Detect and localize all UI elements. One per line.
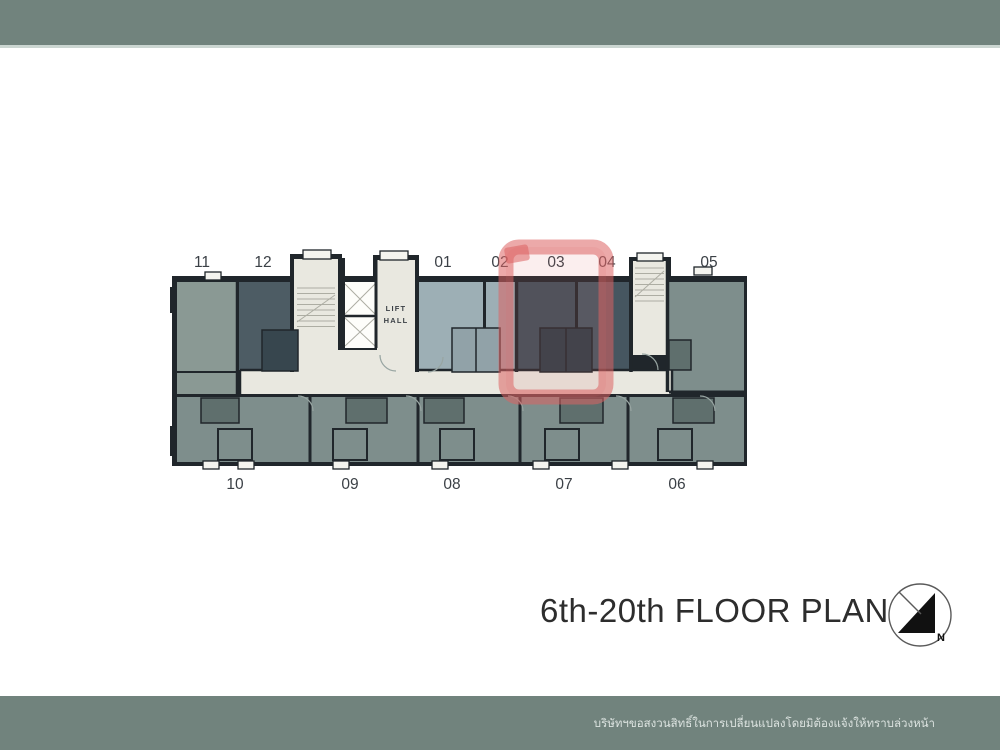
label-unit-11: 11	[194, 254, 210, 271]
lobby-pocket	[294, 350, 417, 372]
compass-tail-line	[899, 592, 921, 614]
compass-needle	[898, 593, 935, 633]
tick-bottom-3	[333, 461, 349, 469]
stairwell-2	[633, 261, 666, 355]
top-band-edge	[0, 45, 1000, 48]
label-unit-08: 08	[443, 476, 460, 493]
compass-north-label: N	[937, 632, 945, 644]
pod-unit-12	[262, 330, 298, 371]
pod-unit-05	[669, 340, 691, 370]
vent-lift-hall	[380, 251, 408, 260]
pod-unit-08	[424, 398, 464, 423]
label-unit-01: 01	[434, 254, 451, 271]
highlight-outline-unit-03	[506, 247, 606, 397]
unit-highlight	[504, 244, 606, 397]
slide: บริษัทฯขอสงวนสิทธิ์ในการเปลี่ยนแปลงโดยมิ…	[0, 0, 1000, 750]
label-unit-12: 12	[254, 254, 271, 271]
tick-bottom-4	[432, 461, 448, 469]
unit-labels-bottom: 10 09 08 07 06	[226, 476, 685, 493]
top-band	[0, 0, 1000, 45]
page-title: 6th-20th FLOOR PLAN	[540, 592, 889, 629]
vent-stair-2	[637, 253, 663, 261]
stairwell-1	[294, 259, 338, 355]
vent-unit-11	[205, 272, 221, 280]
tick-bottom-2	[238, 461, 254, 469]
vent-stair-1	[303, 250, 331, 259]
tick-bottom-7	[697, 461, 713, 469]
label-unit-10: 10	[226, 476, 244, 493]
lift-hall-text-2: HALL	[384, 316, 409, 325]
north-compass-icon: N	[889, 584, 951, 646]
tick-bottom-5	[533, 461, 549, 469]
floor-plan: LIFT HALL 11 12 01 02 03 04 05 10 09 08 …	[170, 244, 747, 493]
tick-bottom-6	[612, 461, 628, 469]
label-unit-05: 05	[700, 254, 717, 271]
lift-hall-text-1: LIFT	[386, 304, 407, 313]
pod-unit-09	[346, 398, 387, 423]
label-unit-09: 09	[341, 476, 358, 493]
unit-05-area	[669, 282, 744, 392]
label-unit-07: 07	[555, 476, 572, 493]
label-unit-06: 06	[668, 476, 685, 493]
unit-11-area	[177, 282, 236, 395]
pod-unit-10	[201, 398, 239, 423]
tick-bottom-1	[203, 461, 219, 469]
floor-plan-svg: บริษัทฯขอสงวนสิทธิ์ในการเปลี่ยนแปลงโดยมิ…	[0, 0, 1000, 750]
pod-unit-06	[673, 398, 714, 423]
